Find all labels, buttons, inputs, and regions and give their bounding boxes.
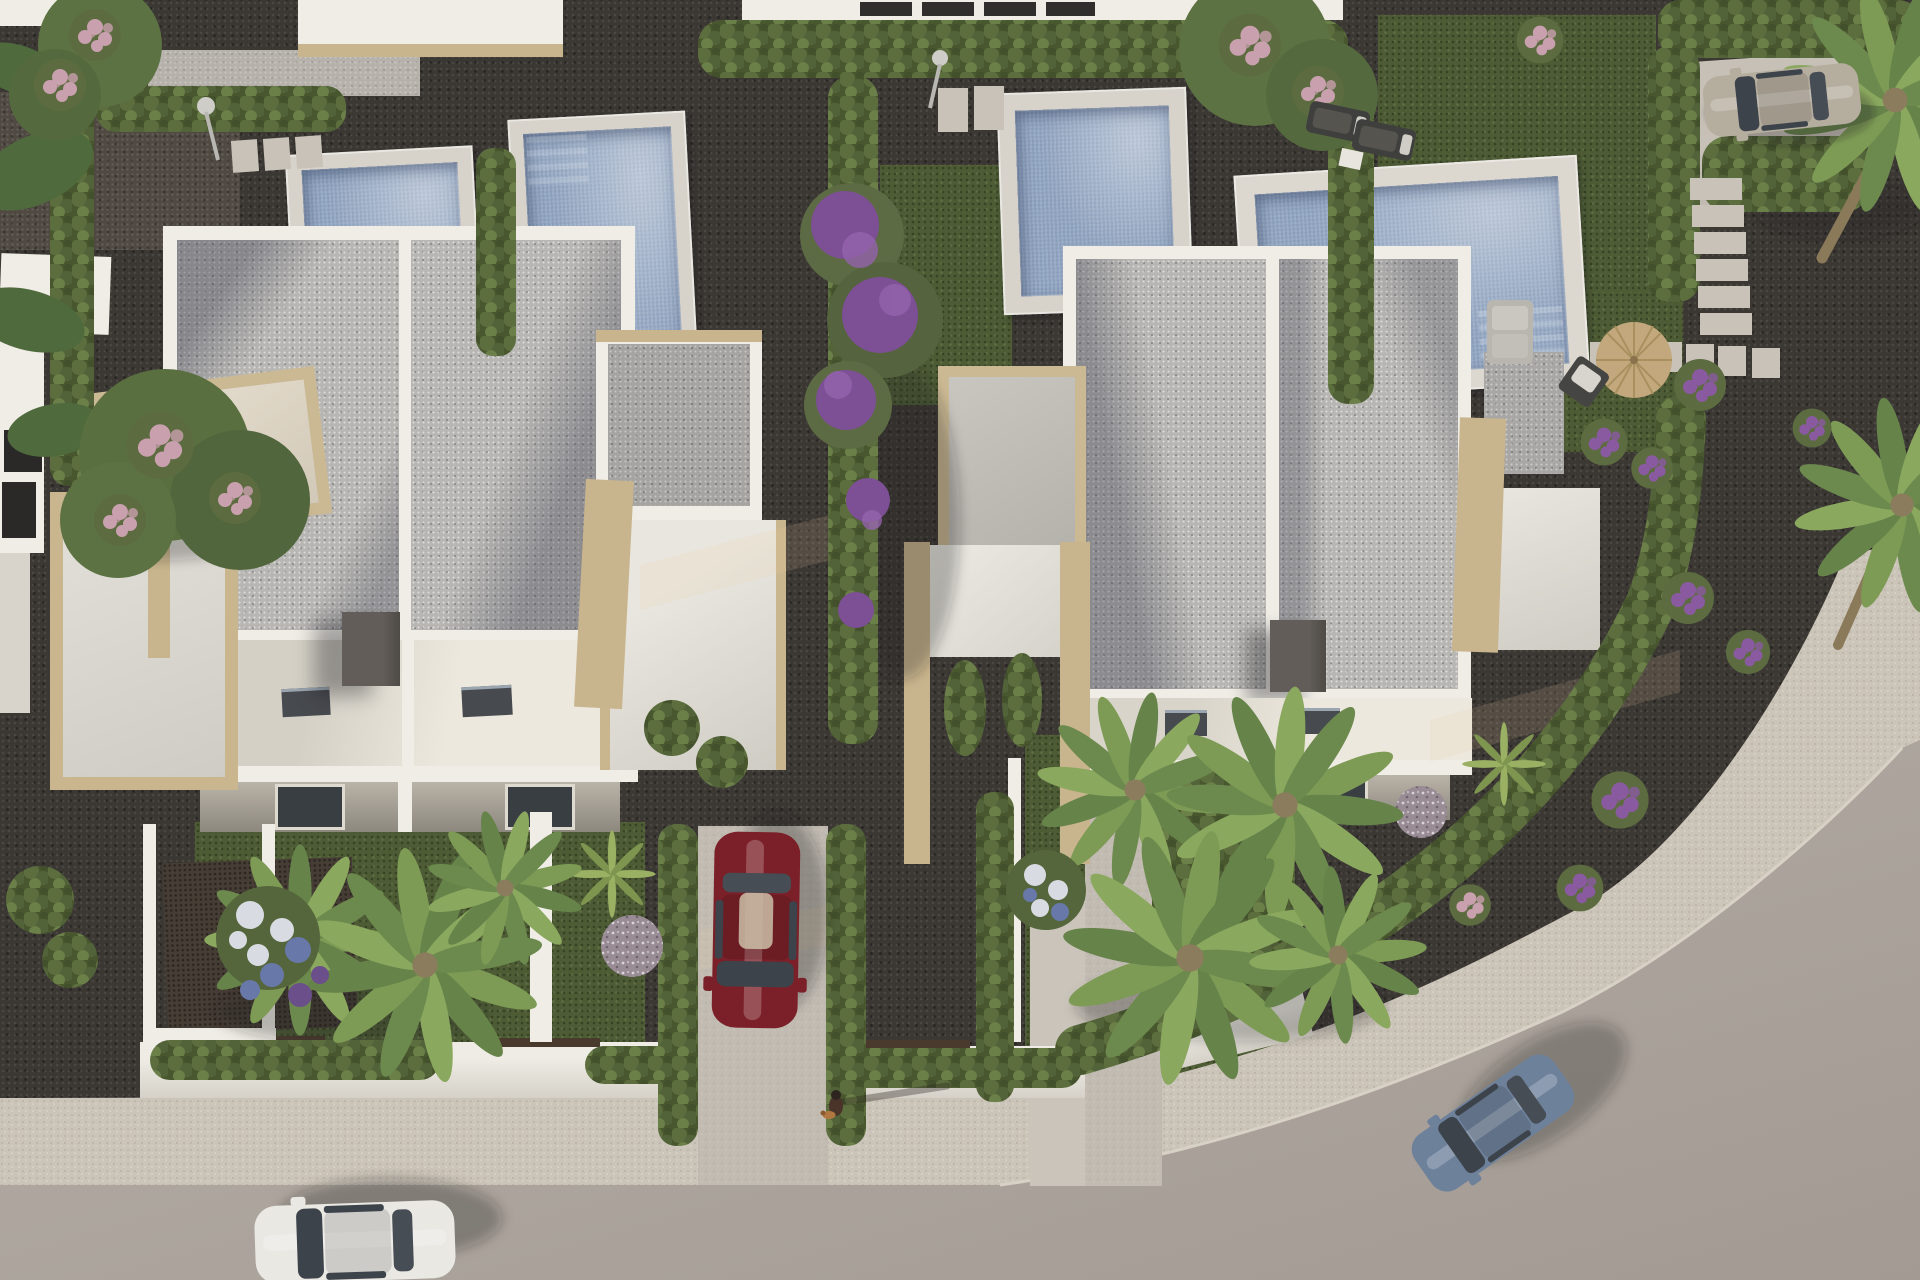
- flora-layer: [0, 0, 1920, 1280]
- car-red-cabin: [739, 893, 774, 950]
- aerial-render-scene: [0, 0, 1920, 1280]
- dog-head: [821, 1111, 826, 1116]
- yucca-plant: [568, 830, 655, 917]
- stepping-stones: [231, 86, 1780, 378]
- yucca-plant: [1462, 722, 1546, 806]
- white-blue-flowerbed-right: [1006, 850, 1086, 930]
- straw-parasol: [1596, 322, 1672, 398]
- pedestrian-head: [831, 1090, 841, 1100]
- car-white: [253, 1192, 456, 1280]
- outdoor-sofa: [1487, 300, 1533, 364]
